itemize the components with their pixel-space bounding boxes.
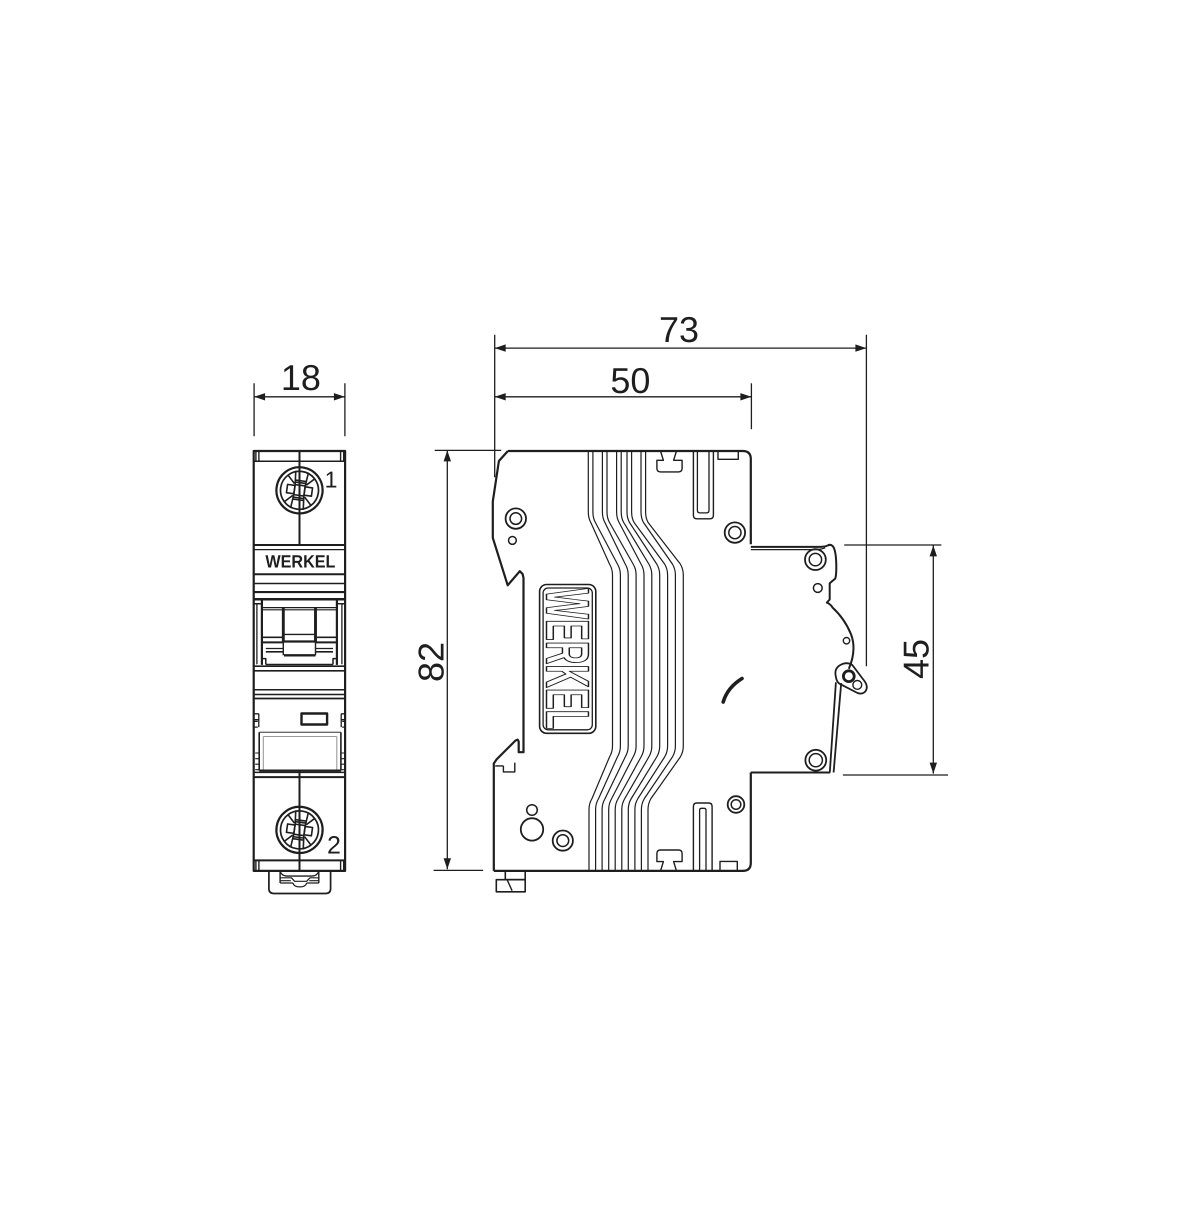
svg-text:45: 45 xyxy=(896,639,937,679)
svg-text:2: 2 xyxy=(327,832,341,860)
svg-text:82: 82 xyxy=(411,642,452,682)
svg-text:50: 50 xyxy=(610,360,650,401)
svg-text:73: 73 xyxy=(659,309,699,350)
svg-text:WERKEL: WERKEL xyxy=(265,551,335,571)
svg-text:WERKEL: WERKEL xyxy=(534,588,602,729)
svg-text:18: 18 xyxy=(281,357,321,398)
svg-text:1: 1 xyxy=(325,467,338,493)
